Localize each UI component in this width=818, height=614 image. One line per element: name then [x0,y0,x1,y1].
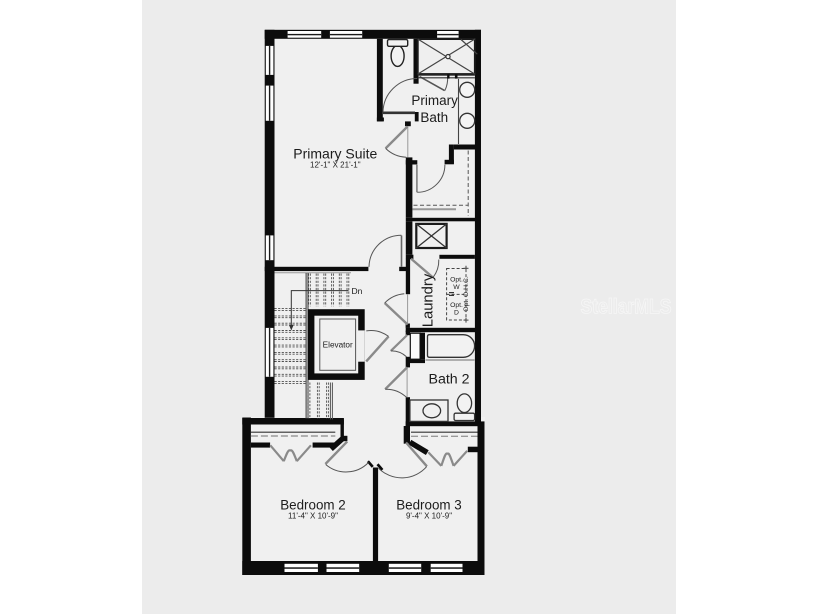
svg-text:Bath: Bath [420,110,448,125]
svg-text:Bedroom 2: Bedroom 2 [280,497,346,512]
svg-text:Opt.: Opt. [450,277,463,284]
svg-text:Bath 2: Bath 2 [428,372,469,388]
svg-text:11'-4" X 10'-9": 11'-4" X 10'-9" [288,512,338,521]
svg-text:Primary: Primary [411,93,458,108]
svg-text:9'-4" X 10'-9": 9'-4" X 10'-9" [406,512,452,521]
svg-text:Laundry: Laundry [421,273,437,327]
svg-text:Elevator: Elevator [323,340,353,349]
svg-text:Opt.: Opt. [450,302,463,309]
svg-text:12'-1" X 21'-1": 12'-1" X 21'-1" [310,161,361,170]
svg-text:Dn: Dn [352,286,363,296]
svg-text:D: D [454,310,459,317]
svg-text:W: W [453,284,460,291]
svg-text:Opt. O.H.C.: Opt. O.H.C. [463,276,470,312]
svg-text:Bedroom 3: Bedroom 3 [396,497,462,512]
svg-text:Primary Suite: Primary Suite [293,145,377,161]
svg-text:StellarMLS: StellarMLS [581,296,672,319]
